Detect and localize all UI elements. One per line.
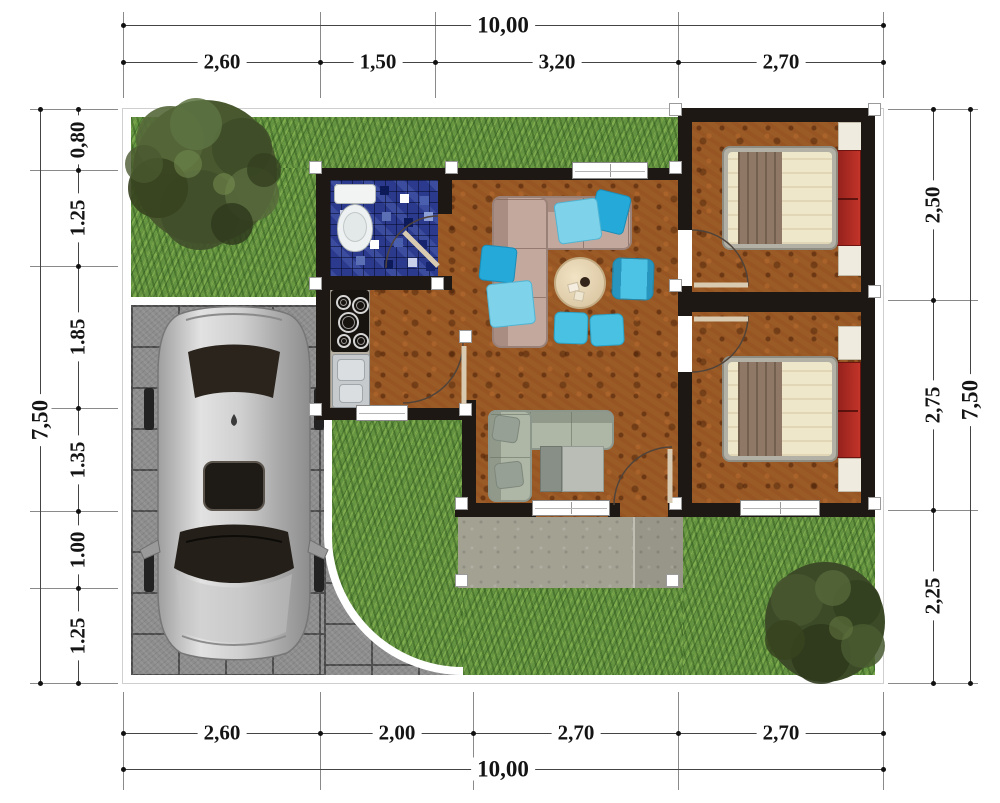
bush-bottom-right xyxy=(745,548,907,700)
floor-plan-canvas: 10,00 2,60 1,50 3,20 2,70 2,60 2,00 2,70… xyxy=(0,0,1000,803)
bedroom1-door-arc xyxy=(692,230,748,286)
bedroom2-door-arc xyxy=(692,316,748,372)
bathroom-door-leaf xyxy=(404,232,438,266)
entry-door-arc xyxy=(614,447,672,505)
tree-top-left xyxy=(100,72,310,272)
kitchen-door-arc xyxy=(403,343,463,403)
